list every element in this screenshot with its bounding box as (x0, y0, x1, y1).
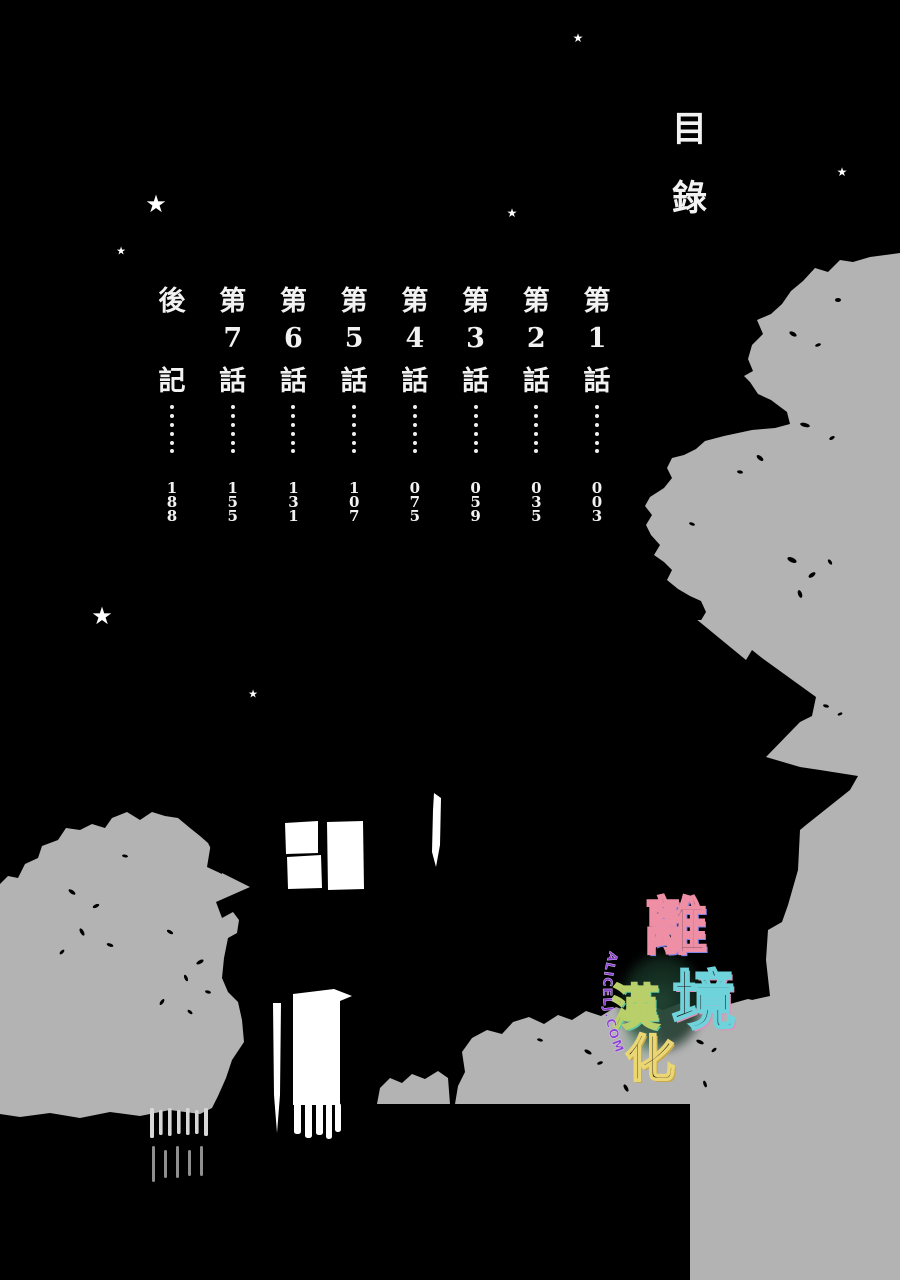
toc-entry-char: 第 (275, 278, 311, 318)
star-icon: ★ (837, 166, 848, 178)
toc-page-number: 131 (288, 481, 298, 523)
dotted-leader (595, 403, 599, 456)
page-number-digit: 9 (470, 509, 480, 523)
toc-entry-char: 5 (336, 318, 372, 358)
toc-entry-char: 話 (336, 358, 372, 398)
page-number-digit: 7 (349, 509, 359, 523)
page-number-digit: 1 (288, 509, 298, 523)
toc-entry-char: 話 (518, 358, 554, 398)
toc-entry-1: 第1話003 (579, 278, 615, 523)
toc-entry-3: 第3話059 (458, 278, 494, 523)
scanlation-watermark: 離境漢化 (645, 896, 646, 897)
toc-entry-char: 話 (275, 358, 311, 398)
toc-entry-8: 後記188 (154, 278, 190, 523)
toc-page-number: 075 (410, 481, 420, 523)
dotted-leader (534, 403, 538, 456)
page-number-digit: 5 (531, 509, 541, 523)
page-number-digit: 5 (410, 509, 420, 523)
toc-page-number: 107 (349, 481, 359, 523)
toc-entry-char: 話 (579, 358, 615, 398)
toc-entry-4: 第4話075 (397, 278, 433, 523)
toc-entry-char: 3 (458, 318, 494, 358)
watermark-site-text: ALICELJ.COM (582, 945, 662, 1105)
toc-page-number: 035 (531, 481, 541, 523)
page-number-digit: 3 (592, 509, 602, 523)
star-icon: ★ (507, 207, 518, 219)
toc-entry-char: 第 (518, 278, 554, 318)
toc-entry-char: 2 (518, 318, 554, 358)
toc-entry-char: 話 (458, 358, 494, 398)
toc-page-number: 188 (167, 481, 177, 523)
toc-page-number: 155 (228, 481, 238, 523)
dotted-leader (413, 403, 417, 456)
toc-entry-char: 4 (397, 318, 433, 358)
toc-entry-char: 後 (154, 278, 190, 318)
svg-text:ALICELJ.COM: ALICELJ.COM (600, 950, 628, 1056)
toc-entry-char: 第 (579, 278, 615, 318)
dotted-leader (170, 403, 174, 456)
toc-entry-char: 1 (579, 318, 615, 358)
toc-entry-char: 話 (397, 358, 433, 398)
toc-entry-7: 第7話155 (215, 278, 251, 523)
star-icon: ★ (145, 192, 167, 216)
star-icon: ★ (116, 246, 126, 257)
star-icon: ★ (573, 32, 584, 44)
night-scene (0, 0, 900, 1280)
toc-entry-char: 第 (458, 278, 494, 318)
toc-page-number: 059 (470, 481, 480, 523)
toc-entry-char: 話 (215, 358, 251, 398)
toc-entry-char: 第 (336, 278, 372, 318)
toc-entry-char (154, 318, 190, 358)
toc-entry-2: 第2話035 (518, 278, 554, 523)
ground-shadow (370, 1104, 690, 1280)
dotted-leader (474, 403, 478, 456)
dotted-leader (291, 403, 295, 456)
toc-entry-char: 第 (397, 278, 433, 318)
page-number-digit: 5 (228, 509, 238, 523)
manga-toc-page: ★★★★★★★ 目錄 第1話003第2話035第3話059第4話075第5話10… (0, 0, 900, 1280)
toc-entry-6: 第6話131 (275, 278, 311, 523)
toc-entry-char: 6 (275, 318, 311, 358)
toc-entry-char: 第 (215, 278, 251, 318)
toc-entry-char: 記 (154, 358, 190, 398)
toc-entry-char: 7 (215, 318, 251, 358)
star-icon: ★ (91, 604, 113, 628)
toc-entry-5: 第5話107 (336, 278, 372, 523)
watermark-site-label: ALICELJ.COM (600, 950, 628, 1056)
watermark-char: 境 (672, 970, 736, 1034)
toc-page-number: 003 (592, 481, 602, 523)
dotted-leader (352, 403, 356, 456)
star-icon: ★ (248, 689, 258, 700)
page-number-digit: 8 (167, 509, 177, 523)
dotted-leader (231, 403, 235, 456)
page-title: 目錄 (664, 110, 708, 248)
